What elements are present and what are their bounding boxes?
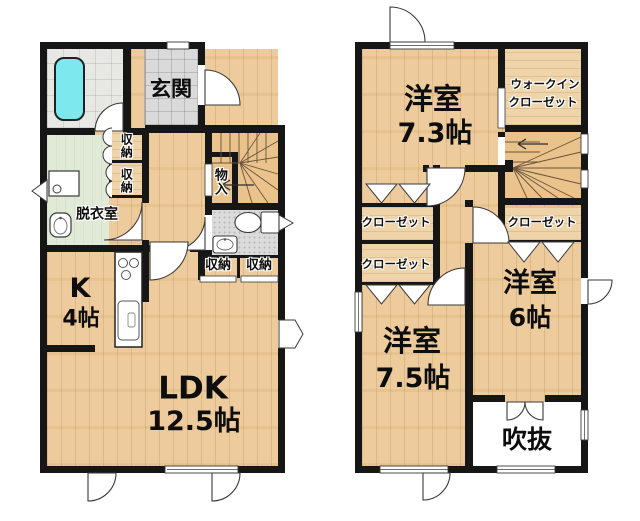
washing-machine-icon	[49, 171, 79, 196]
room-label-bedroom-a: 洋室	[404, 84, 462, 114]
room-label-hall-closet: 物入	[212, 168, 226, 196]
room-label-closet-b: クローゼット	[508, 216, 577, 228]
room-label-storage-1: 収納	[120, 133, 133, 159]
room-size-bedroom-c: 7.5帖	[376, 365, 451, 393]
room-label-storage-4: 収納	[246, 259, 272, 273]
room-size-bedroom-b: 6帖	[509, 305, 551, 331]
stairs-up-arrow-2f	[518, 139, 548, 149]
floorplan-canvas: 玄関 収納 収納 脱衣室 物入 収納 収納 K 4帖 LDK 12.5帖 洋室 …	[0, 0, 640, 521]
room-label-storage-2: 収納	[120, 168, 133, 194]
room-label-storage-3: 収納	[205, 259, 231, 273]
washbasin-icon	[50, 213, 71, 237]
room-label-kitchen: K	[70, 275, 91, 303]
vent-triangle-icon	[32, 180, 47, 202]
stairs-2f-treads	[505, 137, 581, 198]
room-label-bedroom-b: 洋室	[503, 270, 557, 298]
room-label-void: 吹抜	[502, 427, 552, 453]
room-label-dressing-room: 脱衣室	[76, 208, 118, 223]
room-size-bedroom-a: 7.3帖	[398, 120, 473, 148]
room-size-ldk: 12.5帖	[147, 408, 241, 436]
room-label-closet-c: クローゼット	[362, 258, 431, 270]
room-label-entrance: 玄関	[150, 78, 192, 100]
back-door-icon	[279, 320, 303, 348]
room-label-closet-a: クローゼット	[362, 216, 431, 228]
room-size-kitchen: 4帖	[62, 307, 99, 330]
room-label-bedroom-c: 洋室	[383, 326, 441, 356]
kitchen-sink-icon	[118, 301, 139, 340]
room-label-ldk: LDK	[158, 373, 228, 406]
stairs-2f-newel	[505, 160, 513, 172]
room-label-wic-line1: ウォークイン	[511, 78, 580, 90]
bifold-doors-1f	[103, 128, 112, 198]
room-label-wic-line2: クローゼット	[509, 96, 578, 108]
bathtub-icon	[55, 58, 84, 120]
toilet-sink-icon	[213, 236, 237, 253]
